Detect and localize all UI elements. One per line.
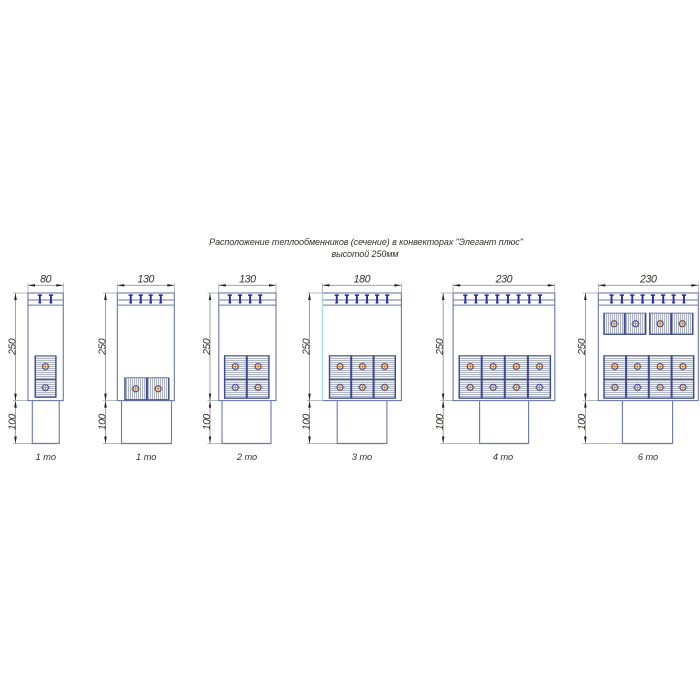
svg-text:250: 250	[577, 338, 588, 356]
svg-text:100: 100	[435, 413, 446, 430]
svg-text:Расположение теплообменников (: Расположение теплообменников (сечение) в…	[209, 237, 524, 247]
svg-text:4 то: 4 то	[493, 452, 513, 462]
svg-text:250: 250	[7, 338, 18, 356]
svg-text:100: 100	[202, 413, 213, 430]
svg-text:3 то: 3 то	[352, 452, 372, 462]
svg-text:высотой 250мм: высотой 250мм	[331, 249, 398, 259]
svg-text:230: 230	[495, 273, 513, 285]
svg-text:130: 130	[239, 273, 256, 285]
svg-text:130: 130	[138, 273, 155, 285]
svg-text:80: 80	[40, 273, 51, 285]
svg-text:100: 100	[97, 413, 108, 430]
svg-text:6 то: 6 то	[638, 452, 658, 462]
svg-text:250: 250	[301, 338, 312, 356]
svg-text:230: 230	[639, 273, 657, 285]
svg-text:2 то: 2 то	[236, 452, 257, 462]
svg-text:180: 180	[354, 273, 371, 285]
svg-text:250: 250	[202, 338, 213, 356]
svg-text:250: 250	[97, 338, 108, 356]
svg-text:1 то: 1 то	[36, 452, 56, 462]
svg-text:100: 100	[7, 413, 18, 430]
svg-text:100: 100	[577, 413, 588, 430]
svg-text:250: 250	[435, 338, 446, 356]
svg-text:1 то: 1 то	[136, 452, 156, 462]
svg-text:100: 100	[301, 413, 312, 430]
